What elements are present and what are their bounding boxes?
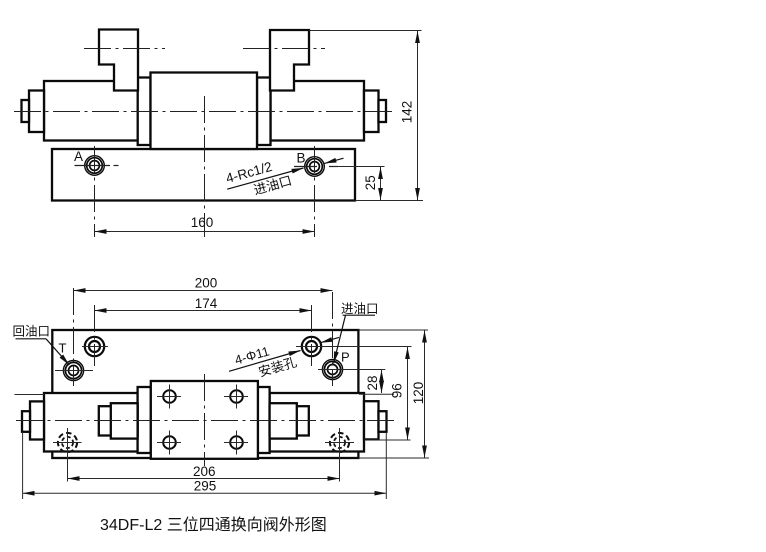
svg-text:206: 206 xyxy=(193,464,216,479)
svg-text:295: 295 xyxy=(194,479,217,494)
svg-text:142: 142 xyxy=(399,101,414,124)
svg-text:96: 96 xyxy=(389,383,404,398)
svg-text:回油口: 回油口 xyxy=(13,325,51,339)
svg-text:P: P xyxy=(341,350,350,365)
svg-text:120: 120 xyxy=(411,382,426,405)
svg-text:T: T xyxy=(59,341,67,356)
svg-text:34DF-L2 三位四通换向阀外形图: 34DF-L2 三位四通换向阀外形图 xyxy=(100,516,327,534)
svg-text:25: 25 xyxy=(363,175,378,190)
svg-text:160: 160 xyxy=(191,215,214,230)
svg-text:B: B xyxy=(297,151,306,166)
svg-text:174: 174 xyxy=(195,296,218,311)
svg-text:A: A xyxy=(74,149,83,164)
svg-text:200: 200 xyxy=(195,276,218,291)
svg-text:28: 28 xyxy=(365,375,380,390)
svg-text:进油口: 进油口 xyxy=(341,302,379,316)
